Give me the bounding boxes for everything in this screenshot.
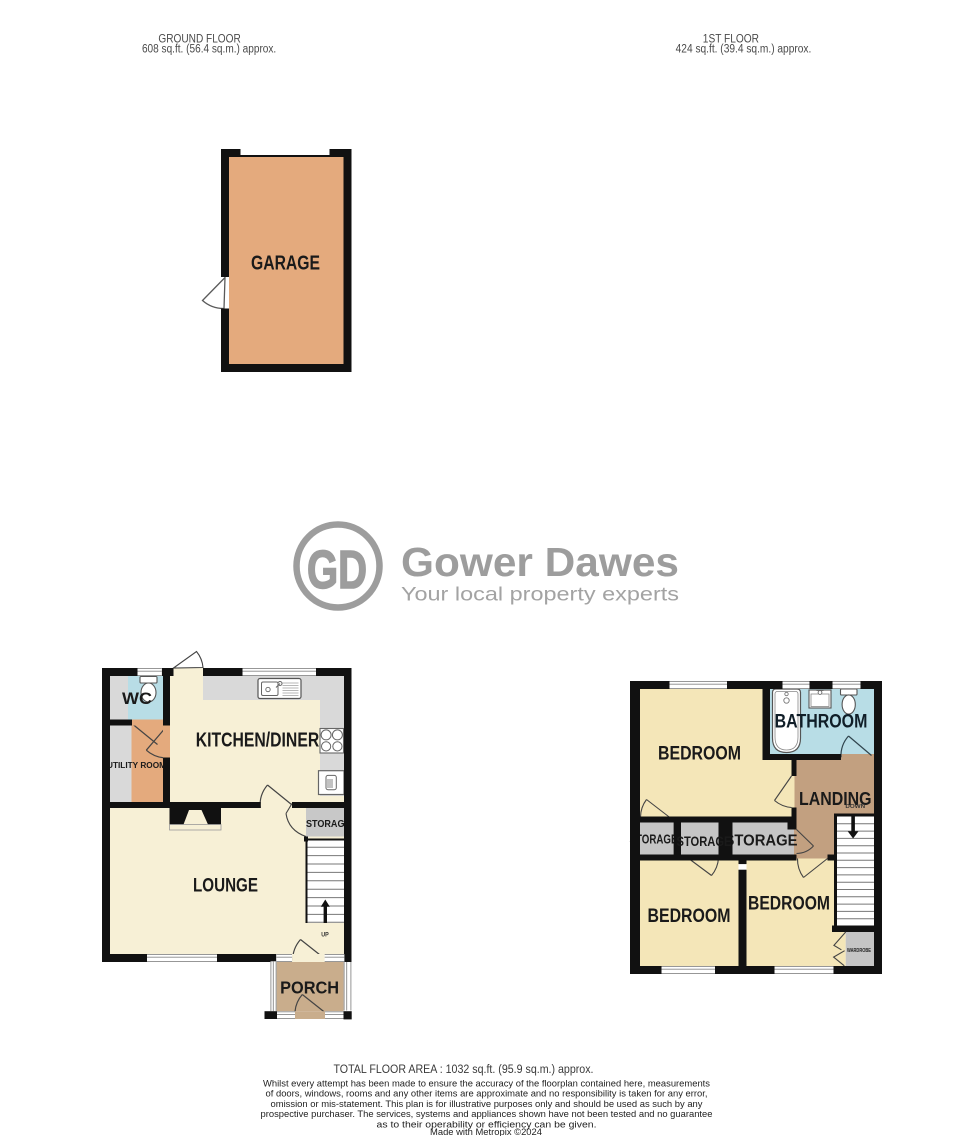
svg-text:BEDROOM: BEDROOM <box>658 744 741 765</box>
svg-text:BEDROOM: BEDROOM <box>648 906 731 927</box>
svg-text:TOTAL FLOOR AREA : 1032 sq.ft.: TOTAL FLOOR AREA : 1032 sq.ft. (95.9 sq.… <box>334 1062 594 1076</box>
svg-text:Whilst every attempt has been: Whilst every attempt has been made to en… <box>263 1079 711 1089</box>
svg-text:STORAGE: STORAGE <box>677 833 732 849</box>
svg-text:GD: GD <box>307 540 367 600</box>
svg-text:DOWN: DOWN <box>845 804 865 810</box>
svg-text:prospective purchaser. The ser: prospective purchaser. The services, sys… <box>261 1109 713 1119</box>
svg-text:of doors, windows, rooms and a: of doors, windows, rooms and any other i… <box>266 1089 708 1099</box>
svg-text:Made with Metropix ©2024: Made with Metropix ©2024 <box>430 1127 542 1136</box>
svg-text:GARAGE: GARAGE <box>251 252 320 274</box>
svg-text:BATHROOM: BATHROOM <box>775 712 868 733</box>
svg-text:Your local property experts: Your local property experts <box>401 584 679 606</box>
svg-text:STORAGE: STORAGE <box>306 818 351 830</box>
svg-text:UTILITY ROOM: UTILITY ROOM <box>107 760 166 770</box>
svg-text:STORAGE: STORAGE <box>725 833 798 850</box>
svg-text:PORCH: PORCH <box>280 978 339 998</box>
svg-text:424 sq.ft. (39.4 sq.m.) approx: 424 sq.ft. (39.4 sq.m.) approx. <box>676 44 812 56</box>
svg-text:omission or mis-statement. Thi: omission or mis-statement. This plan is … <box>271 1099 704 1109</box>
svg-text:WARDROBE: WARDROBE <box>847 948 871 954</box>
svg-text:Gower Dawes: Gower Dawes <box>401 539 679 585</box>
svg-text:WC: WC <box>122 689 152 708</box>
svg-text:BEDROOM: BEDROOM <box>748 893 830 914</box>
svg-text:608 sq.ft. (56.4 sq.m.) approx: 608 sq.ft. (56.4 sq.m.) approx. <box>142 44 276 56</box>
svg-text:LOUNGE: LOUNGE <box>193 876 258 897</box>
svg-text:KITCHEN/DINER: KITCHEN/DINER <box>196 730 320 752</box>
svg-text:UP: UP <box>321 932 329 939</box>
